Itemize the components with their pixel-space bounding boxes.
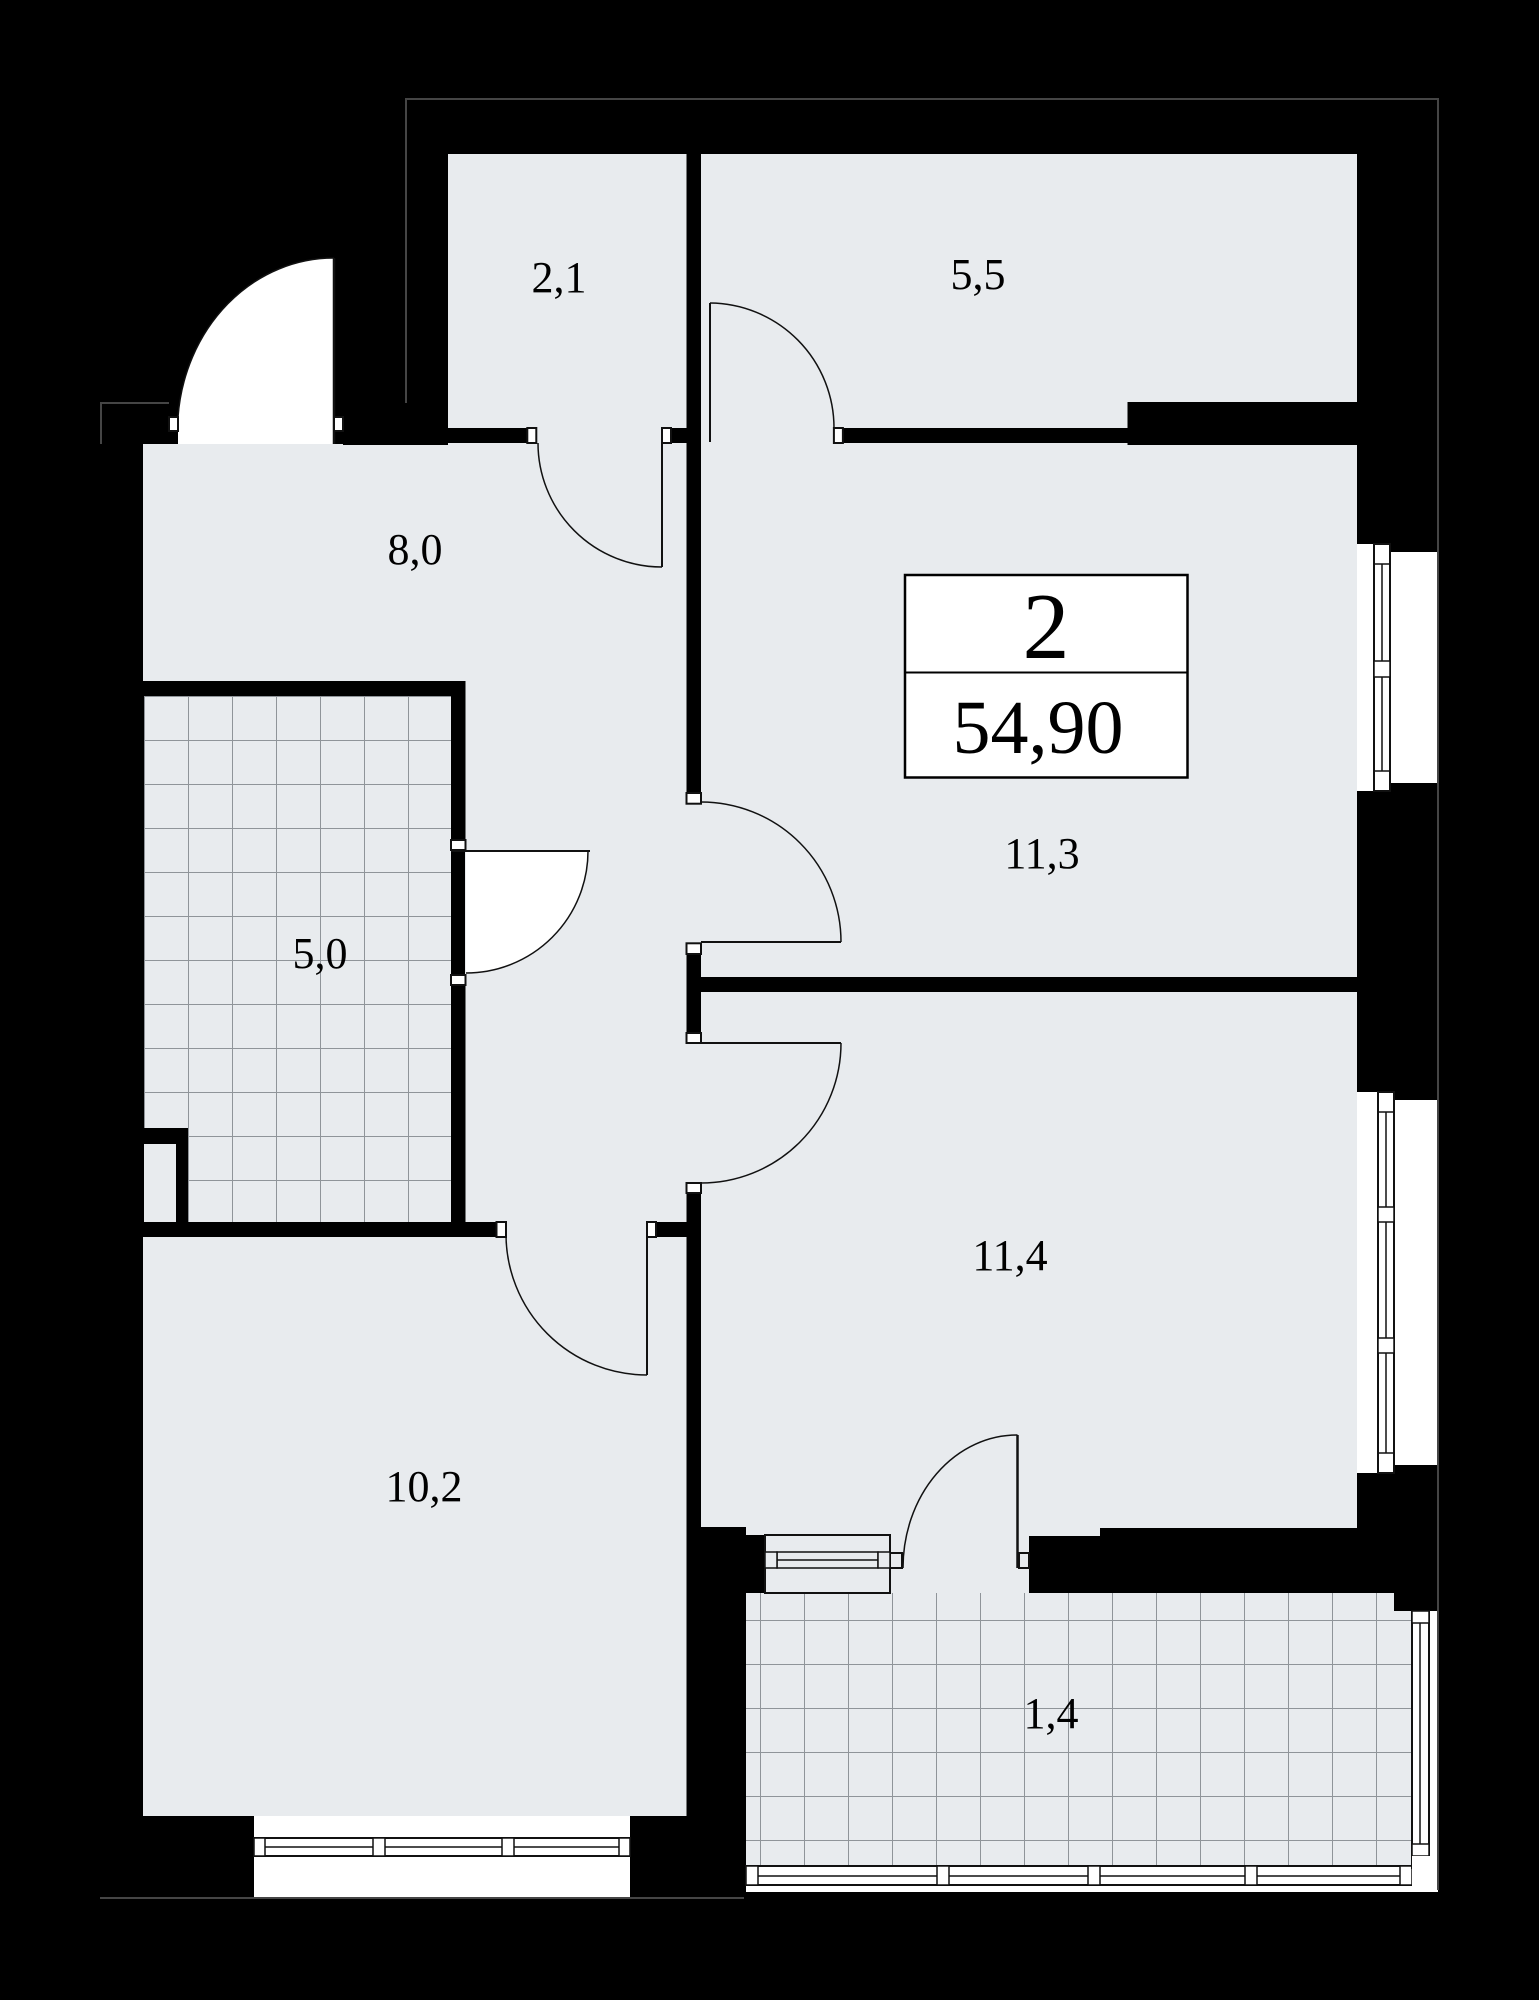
svg-text:8,0: 8,0 — [388, 525, 443, 574]
svg-text:11,4: 11,4 — [972, 1231, 1047, 1280]
svg-text:1,4: 1,4 — [1024, 1689, 1079, 1738]
svg-text:2,1: 2,1 — [532, 253, 587, 302]
svg-text:5,5: 5,5 — [951, 250, 1006, 299]
svg-text:10,2: 10,2 — [386, 1462, 463, 1511]
svg-text:54,90: 54,90 — [953, 686, 1124, 770]
svg-text:5,0: 5,0 — [293, 929, 348, 978]
svg-text:2: 2 — [1023, 575, 1070, 679]
svg-text:11,3: 11,3 — [1004, 829, 1079, 878]
